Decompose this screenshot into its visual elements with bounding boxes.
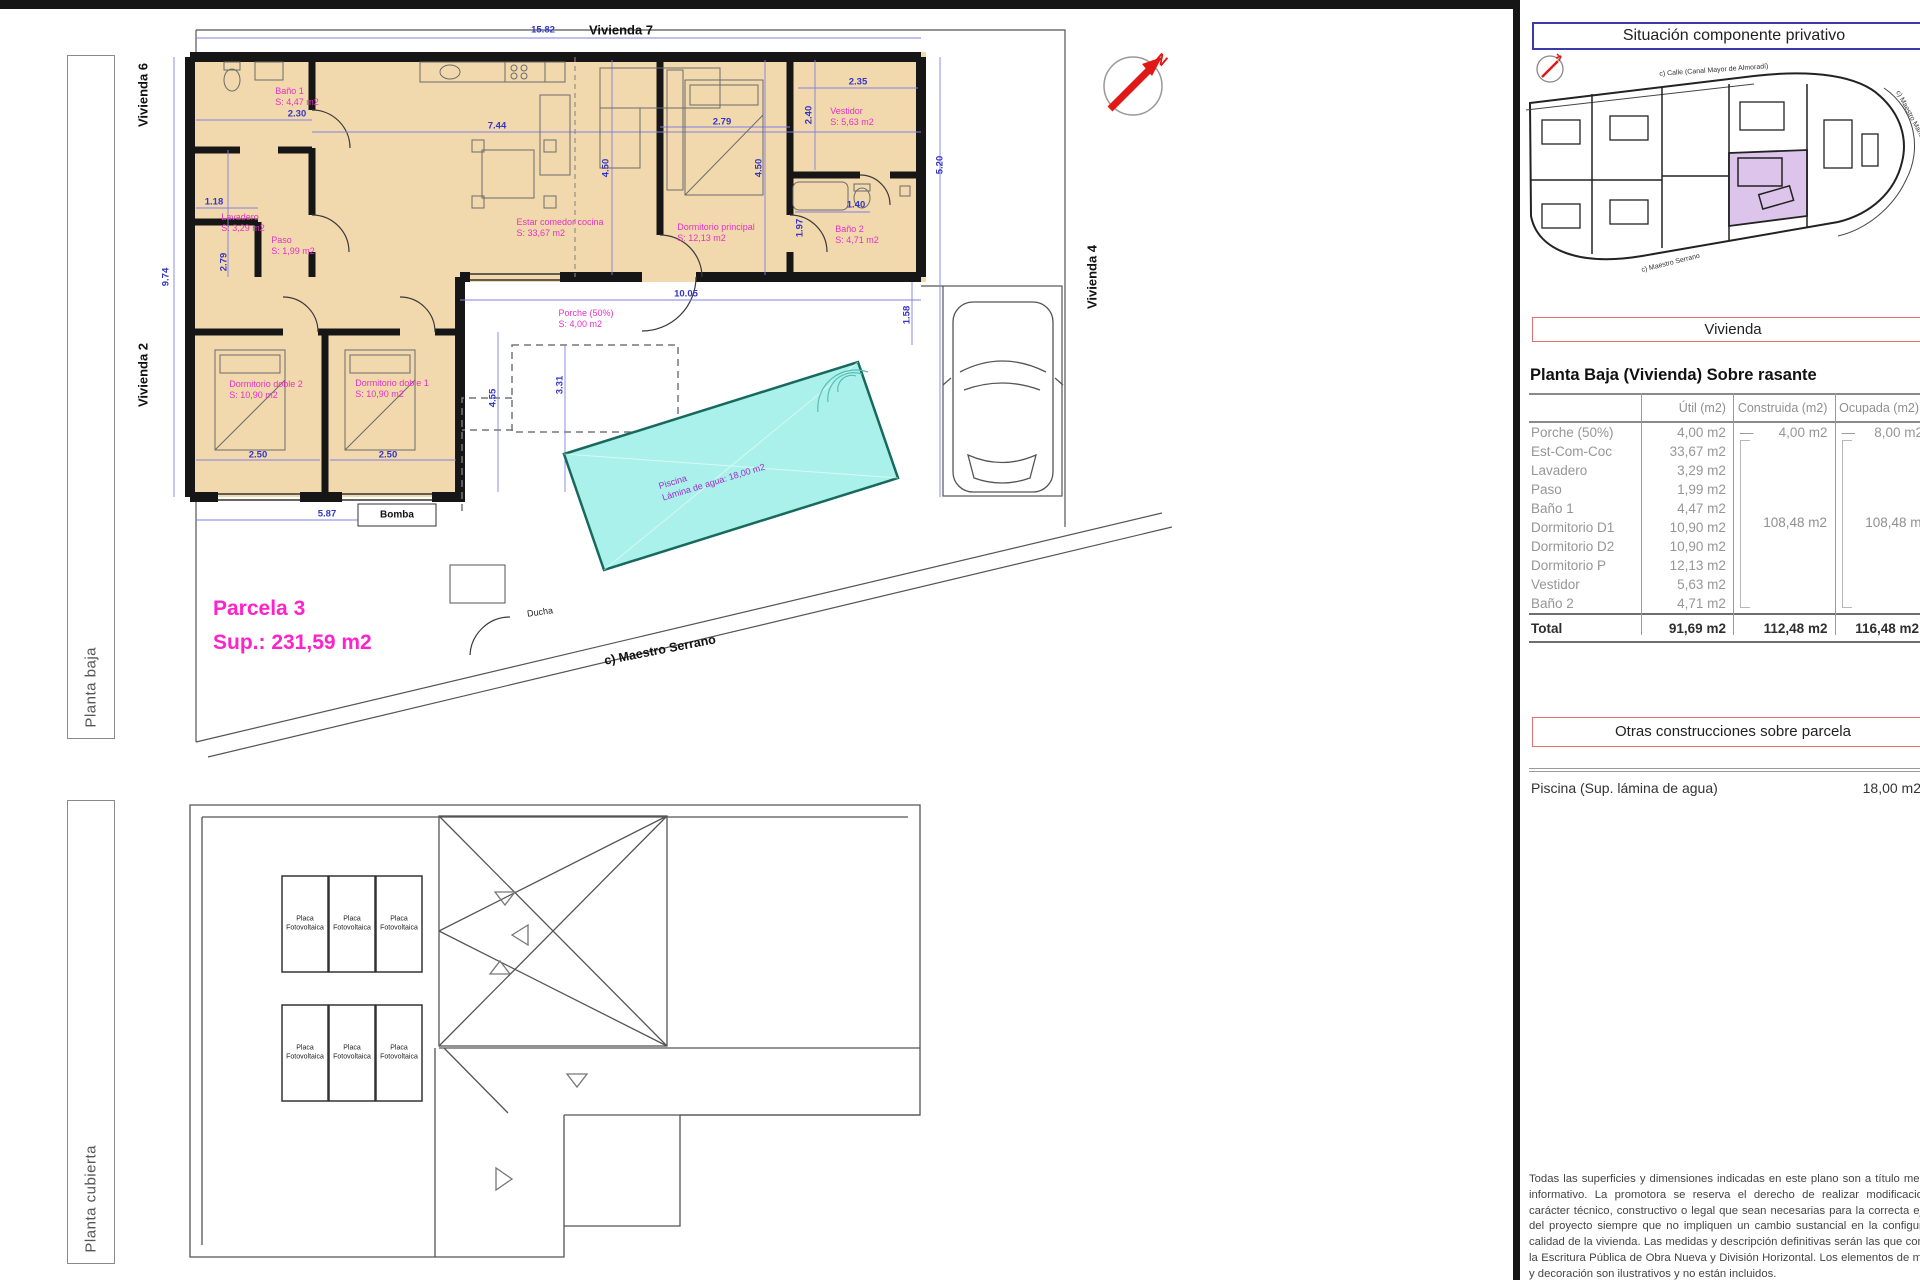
- table-row: Baño 24,71 m2: [1529, 594, 1920, 613]
- dim-label: 2.50: [379, 450, 398, 461]
- table-row: Dormitorio P12,13 m2: [1529, 556, 1920, 575]
- room-label: Dormitorio doble 1S: 10,90 m2: [355, 378, 429, 400]
- ocupada-group-value: 108,48 m2: [1835, 515, 1920, 531]
- site-minimap: c) Calle (Canal Mayor de Almoradí) c) Ma…: [1524, 58, 1920, 288]
- dim-label: 1.97: [795, 219, 806, 238]
- row-label: Dormitorio P: [1529, 558, 1642, 573]
- piscina-row: Piscina (Sup. lámina de agua) 18,00 m2: [1529, 772, 1920, 796]
- room-label: VestidorS: 5,63 m2: [830, 106, 874, 128]
- row-label: Paso: [1529, 482, 1642, 497]
- row-label: Vestidor: [1529, 577, 1642, 592]
- planta-heading: Planta Baja (Vivienda) Sobre rasante: [1530, 366, 1817, 385]
- otras-title-box: Otras construcciones sobre parcela: [1532, 717, 1920, 747]
- row-label: Lavadero: [1529, 463, 1642, 478]
- col-util: Útil (m2): [1642, 401, 1734, 415]
- table-row: Dormitorio D210,90 m2: [1529, 537, 1920, 556]
- row-util: 3,29 m2: [1642, 463, 1734, 478]
- dim-label: 15.82: [531, 25, 555, 36]
- room-label: Dormitorio doble 2S: 10,90 m2: [229, 379, 303, 401]
- vivienda-title-box: Vivienda: [1532, 317, 1920, 342]
- table-separator: [1835, 393, 1836, 635]
- room-label: Estar comedor cocinaS: 33,67 m2: [516, 217, 603, 239]
- misc-label: N: [1151, 50, 1170, 70]
- row-label: Baño 1: [1529, 501, 1642, 516]
- piscina-value: 18,00 m2: [1863, 780, 1920, 796]
- situacion-title: Situación componente privativo: [1623, 27, 1845, 44]
- dim-label: 2.30: [288, 109, 307, 120]
- col-ocupada: Ocupada (m2): [1835, 401, 1920, 415]
- table-total-row: Total 91,69 m2 112,48 m2 116,48 m2: [1529, 613, 1920, 643]
- vivienda-title: Vivienda: [1704, 321, 1761, 338]
- row-util: 4,47 m2: [1642, 501, 1734, 516]
- table-row: Porche (50%)4,00 m2—4,00 m2—8,00 m2: [1529, 423, 1920, 442]
- row-construida: —4,00 m2: [1734, 425, 1836, 440]
- dim-label: 7.44: [488, 121, 507, 132]
- solar-panel-label: PlacaFotovoltaica: [286, 1044, 324, 1062]
- dim-label: 1.58: [902, 306, 913, 325]
- solar-panel-label: PlacaFotovoltaica: [380, 1044, 418, 1062]
- row-util: 4,71 m2: [1642, 596, 1734, 611]
- misc-label: Bomba: [380, 510, 414, 521]
- table-row: Est-Com-Coc33,67 m2: [1529, 442, 1920, 461]
- row-ocupada: —8,00 m2: [1835, 425, 1920, 440]
- dim-label: 3.31: [555, 376, 566, 395]
- row-label: Dormitorio D2: [1529, 539, 1642, 554]
- neighbor-label: Vivienda 7: [589, 23, 653, 38]
- dim-label: 2.79: [219, 253, 230, 272]
- row-util: 5,63 m2: [1642, 577, 1734, 592]
- dim-label: 1.40: [847, 200, 866, 211]
- dim-label: 5.87: [318, 509, 337, 520]
- col-construida: Construida (m2): [1734, 401, 1836, 415]
- table-row: Vestidor5,63 m2: [1529, 575, 1920, 594]
- solar-panel-label: PlacaFotovoltaica: [380, 915, 418, 933]
- piscina-label: Piscina (Sup. lámina de agua): [1531, 780, 1718, 796]
- dim-label: 2.50: [249, 450, 268, 461]
- neighbor-label: Vivienda 4: [1085, 245, 1100, 309]
- misc-label: c) Maestro Serrano: [603, 632, 717, 667]
- otras-title: Otras construcciones sobre parcela: [1615, 723, 1851, 740]
- neighbor-label: Vivienda 2: [136, 343, 151, 407]
- room-label: LavaderoS: 3,29 m2: [221, 212, 265, 234]
- plan-labels-layer: Parcela 3 Sup.: 231,59 m2 Piscina Lámina…: [0, 0, 1513, 1280]
- dim-label: 4.50: [754, 159, 765, 178]
- row-util: 12,13 m2: [1642, 558, 1734, 573]
- dim-label: 10.05: [674, 289, 698, 300]
- dim-label: 2.35: [849, 77, 868, 88]
- row-label: Porche (50%): [1529, 425, 1642, 440]
- row-util: 10,90 m2: [1642, 520, 1734, 535]
- neighbor-label: Vivienda 6: [136, 63, 151, 127]
- misc-label: Ducha: [526, 605, 553, 619]
- row-label: Baño 2: [1529, 596, 1642, 611]
- row-util: 10,90 m2: [1642, 539, 1734, 554]
- room-label: PasoS: 1,99 m2: [271, 235, 315, 257]
- dim-label: 4.55: [488, 389, 499, 408]
- dim-label: 2.40: [804, 106, 815, 125]
- table-row: Lavadero3,29 m2: [1529, 461, 1920, 480]
- room-label: Baño 1S: 4,47 m2: [275, 86, 319, 108]
- info-panel: Situación componente privativo: [1513, 0, 1920, 1280]
- parcela-label: Parcela 3 Sup.: 231,59 m2: [213, 592, 372, 660]
- pool-label: Piscina Lámina de agua: 18,00 m2: [657, 450, 766, 504]
- dim-label: 5.20: [935, 156, 946, 175]
- solar-panel-label: PlacaFotovoltaica: [333, 1044, 371, 1062]
- row-util: 1,99 m2: [1642, 482, 1734, 497]
- disclaimer-text: Todas las superficies y dimensiones indi…: [1529, 1172, 1920, 1280]
- row-label: Dormitorio D1: [1529, 520, 1642, 535]
- situacion-title-box: Situación componente privativo: [1532, 22, 1920, 50]
- table-row: Paso1,99 m2: [1529, 480, 1920, 499]
- row-label: Est-Com-Coc: [1529, 444, 1642, 459]
- dim-label: 9.74: [161, 268, 172, 287]
- otras-section: Piscina (Sup. lámina de agua) 18,00 m2: [1529, 768, 1920, 796]
- solar-panel-label: PlacaFotovoltaica: [286, 915, 324, 933]
- dim-label: 4.50: [601, 159, 612, 178]
- construida-group-value: 108,48 m2: [1733, 515, 1827, 531]
- table-separator: [1641, 393, 1642, 635]
- table-header: Útil (m2) Construida (m2) Ocupada (m2): [1529, 393, 1920, 423]
- row-util: 4,00 m2: [1642, 425, 1734, 440]
- dim-label: 1.18: [205, 197, 224, 208]
- room-label: Baño 2S: 4,71 m2: [835, 224, 879, 246]
- room-label: Dormitorio principalS: 12,13 m2: [677, 222, 755, 244]
- minimap-street-bottom: c) Maestro Serrano: [1641, 253, 1701, 274]
- solar-panel-label: PlacaFotovoltaica: [333, 915, 371, 933]
- table-separator: [1733, 393, 1734, 635]
- dim-label: 2.79: [713, 117, 732, 128]
- room-label: Porche (50%)S: 4,00 m2: [558, 308, 613, 330]
- surfaces-table: Útil (m2) Construida (m2) Ocupada (m2) P…: [1529, 393, 1920, 643]
- row-util: 33,67 m2: [1642, 444, 1734, 459]
